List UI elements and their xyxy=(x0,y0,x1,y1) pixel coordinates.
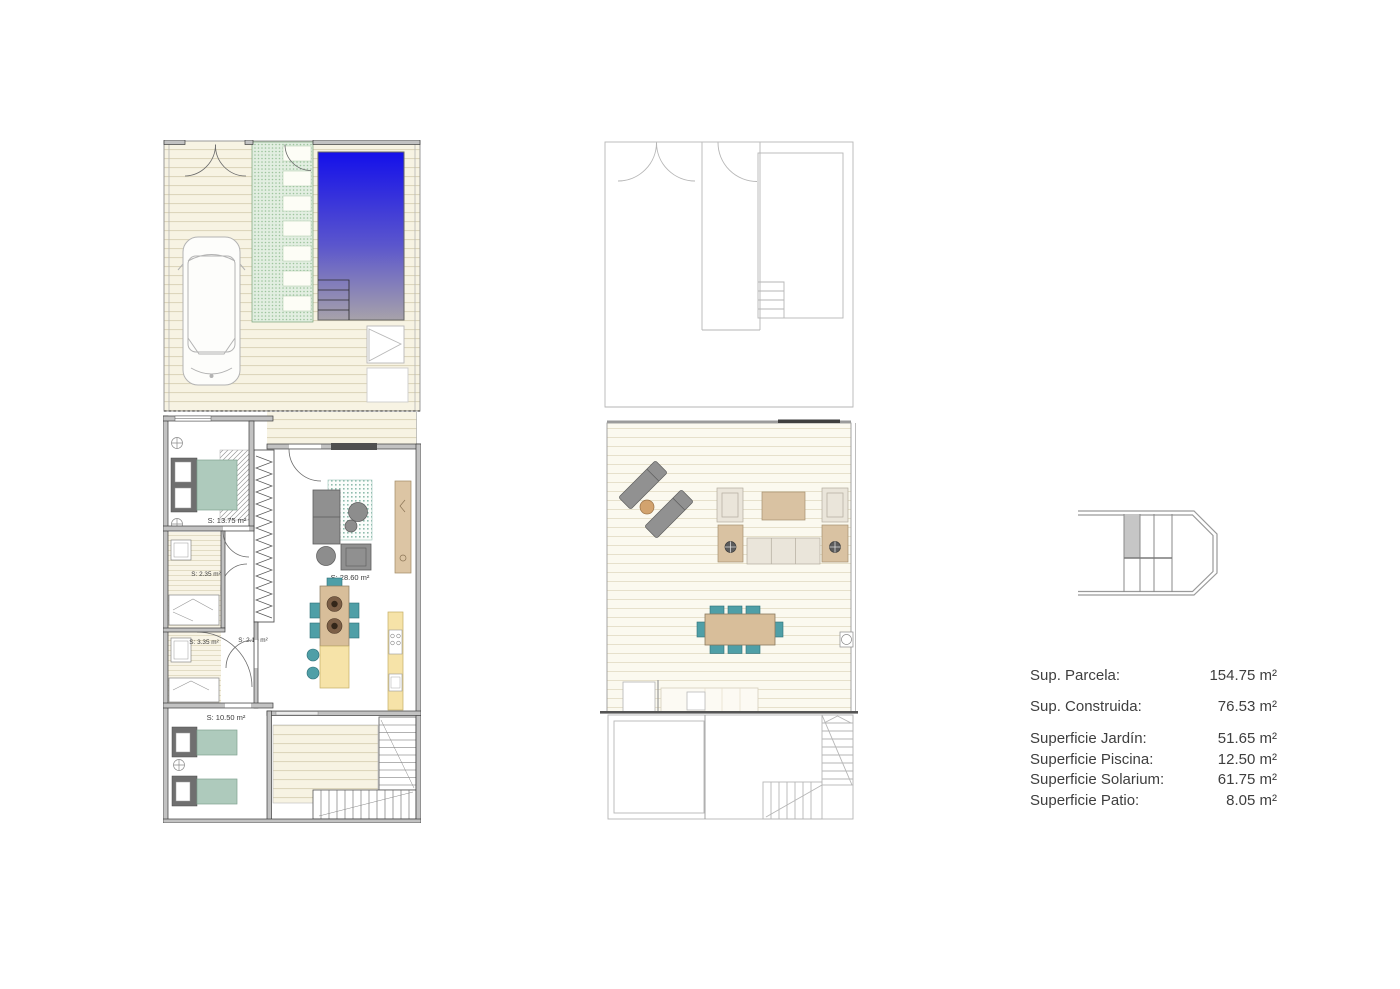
solarium-rear-wall xyxy=(600,711,858,714)
legend-value: 76.53 m² xyxy=(1218,697,1277,718)
floorplan-sheet: S: 13.75 m² S: 28.60 m² xyxy=(0,0,1400,989)
room-label: S: 10.50 m² xyxy=(207,713,246,722)
legend-label: Superficie Jardín: xyxy=(1030,729,1147,750)
kitchen-counter-icon xyxy=(388,612,403,710)
stairs-ghost-icon xyxy=(763,715,853,819)
bed-single-icon xyxy=(172,727,237,757)
legend-value: 12.50 m² xyxy=(1218,750,1277,771)
legend-label: Superficie Solarium: xyxy=(1030,770,1164,791)
car-icon xyxy=(178,237,245,385)
room-label: S: 2.10 m² xyxy=(238,637,267,644)
coffee-table-icon xyxy=(349,503,368,522)
legend-label: Sup. Parcela: xyxy=(1030,666,1120,687)
legend-value: 154.75 m² xyxy=(1209,666,1277,687)
stool-icon xyxy=(307,667,319,679)
area-legend: Sup. Parcela: 154.75 m² Sup. Construida:… xyxy=(1030,666,1277,811)
door-gap xyxy=(255,640,258,668)
highlighted-unit xyxy=(1124,514,1140,558)
outdoor-shower xyxy=(367,326,404,363)
room-label: S: 2.35 m² xyxy=(191,571,220,578)
side-table-icon xyxy=(640,500,654,514)
ceiling-light-icon xyxy=(174,760,185,771)
staircase xyxy=(254,450,274,622)
wall-fixture-icon xyxy=(840,632,853,647)
roof-void-outline xyxy=(605,142,853,407)
legend-value: 61.75 m² xyxy=(1218,770,1277,791)
legend-row: Superficie Jardín: 51.65 m² xyxy=(1030,729,1277,750)
stool-icon xyxy=(307,649,319,661)
glass-balustrade xyxy=(778,420,840,424)
sofa-icon xyxy=(747,538,820,564)
room-label: S: 13.75 m² xyxy=(208,516,247,525)
legend-label: Superficie Patio: xyxy=(1030,791,1139,812)
side-table-icon xyxy=(345,520,357,532)
coffee-table-icon xyxy=(762,492,805,520)
dining-table-icon xyxy=(705,614,775,645)
legend-value: 51.65 m² xyxy=(1218,729,1277,750)
legend-value: 8.05 m² xyxy=(1226,791,1277,812)
sliding-door xyxy=(276,712,318,716)
stepping-path xyxy=(252,142,313,322)
legend-row: Superficie Solarium: 61.75 m² xyxy=(1030,770,1277,791)
bed-double-icon xyxy=(171,458,237,512)
garden-storage xyxy=(367,368,408,402)
legend-row: Superficie Patio: 8.05 m² xyxy=(1030,791,1277,812)
legend-row: Superficie Piscina: 12.50 m² xyxy=(1030,750,1277,771)
pool xyxy=(318,152,404,320)
door-gap xyxy=(225,704,251,708)
lower-floor-ghost xyxy=(608,715,853,819)
terrace-strip xyxy=(267,412,417,444)
bed-single-icon xyxy=(172,776,237,806)
tv-unit-icon xyxy=(395,481,411,573)
legend-row: Sup. Parcela: 154.75 m² xyxy=(1030,666,1277,687)
first-floor-plan xyxy=(600,140,858,823)
door-gap xyxy=(223,527,249,531)
shower-icon xyxy=(169,678,219,702)
legend-label: Superficie Piscina: xyxy=(1030,750,1153,771)
room-label: S: 3.35 m² xyxy=(189,639,218,646)
pouf-icon xyxy=(317,547,336,566)
legend-label: Sup. Construida: xyxy=(1030,697,1142,718)
door-gap xyxy=(289,445,321,449)
solarium xyxy=(607,420,856,714)
window-sill xyxy=(331,443,377,450)
ground-floor-plan: S: 13.75 m² S: 28.60 m² xyxy=(163,140,421,823)
keyplan-icon xyxy=(1078,503,1226,603)
legend-row: Sup. Construida: 76.53 m² xyxy=(1030,697,1277,718)
